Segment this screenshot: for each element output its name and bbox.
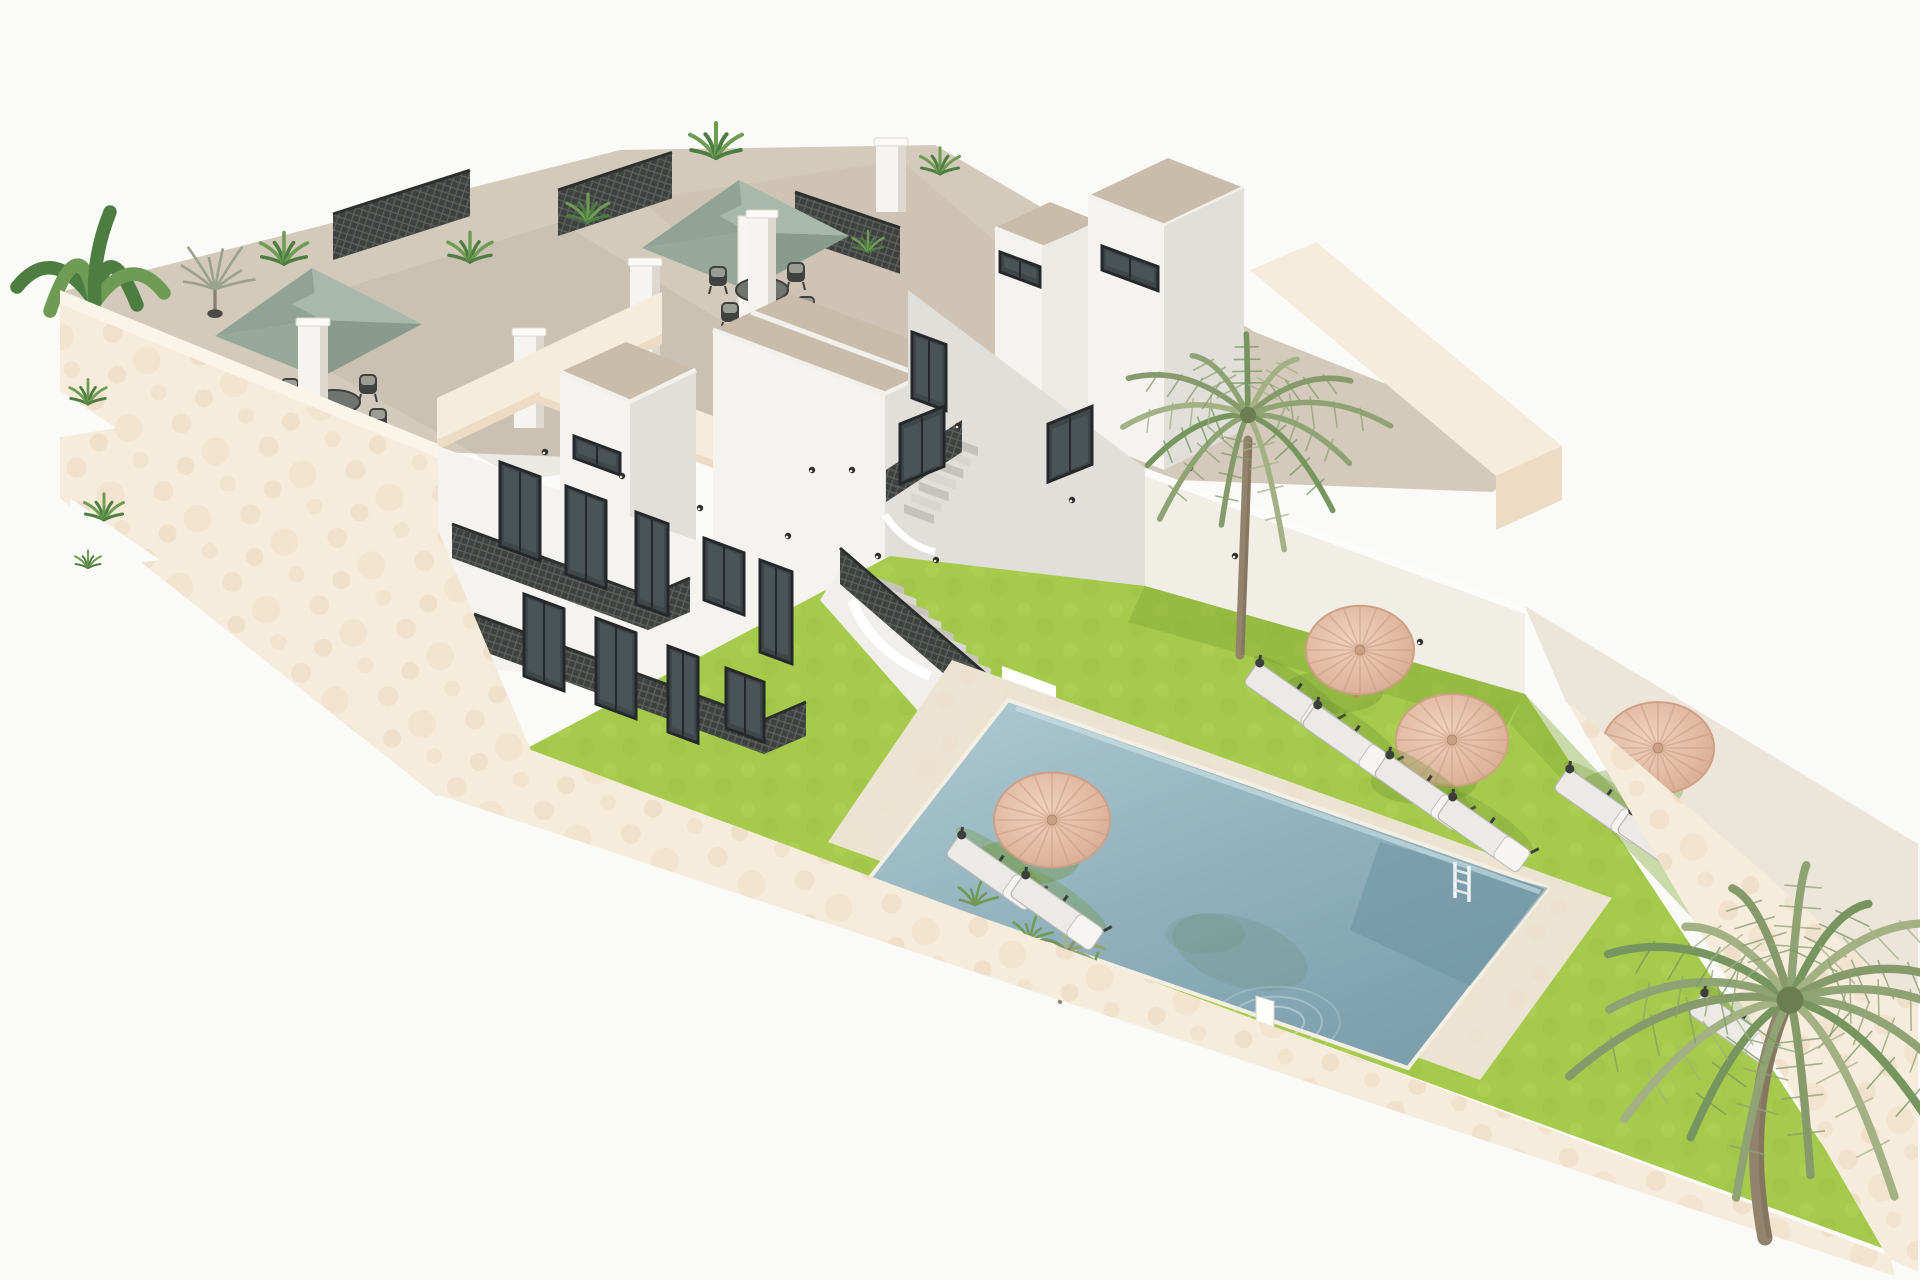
window: [566, 486, 606, 589]
tower-face: [1088, 196, 1164, 470]
wall-sconce-light: [1069, 497, 1075, 503]
window: [726, 668, 764, 742]
wall-sconce-light: [1232, 553, 1238, 559]
canopy-cap: [1355, 645, 1365, 655]
canopy-cap: [1653, 743, 1663, 753]
canopy-cap: [1047, 815, 1057, 825]
window: [704, 538, 744, 615]
wall-sconce-light: [542, 449, 548, 455]
canopy-cap: [1447, 735, 1457, 745]
wall-sconce-light: [809, 467, 815, 473]
palm-crown: [1777, 987, 1804, 1014]
chimney-pillar: [874, 138, 908, 212]
window: [524, 594, 564, 691]
palm-crown: [1240, 407, 1256, 423]
wall-sconce-light: [697, 505, 703, 511]
palm-reflection: [1165, 914, 1245, 954]
tower-face-shaded: [1164, 188, 1244, 470]
architectural-render: Aerial 3D render of a white Mediterranea…: [0, 0, 1920, 1280]
window: [912, 332, 946, 411]
wall-sconce-light: [785, 533, 791, 539]
window: [668, 646, 698, 743]
window: [636, 512, 668, 616]
wall-sconce-light: [619, 473, 625, 479]
wall-sconce-light: [955, 423, 961, 429]
wall-sconce-light: [933, 557, 939, 563]
window: [760, 560, 792, 664]
render-canvas: [0, 0, 1920, 1280]
window: [500, 462, 540, 561]
wall-sconce-light: [849, 467, 855, 473]
window: [596, 618, 636, 719]
wall-sconce-light: [875, 553, 881, 559]
wall-sconce-light: [1417, 639, 1423, 645]
